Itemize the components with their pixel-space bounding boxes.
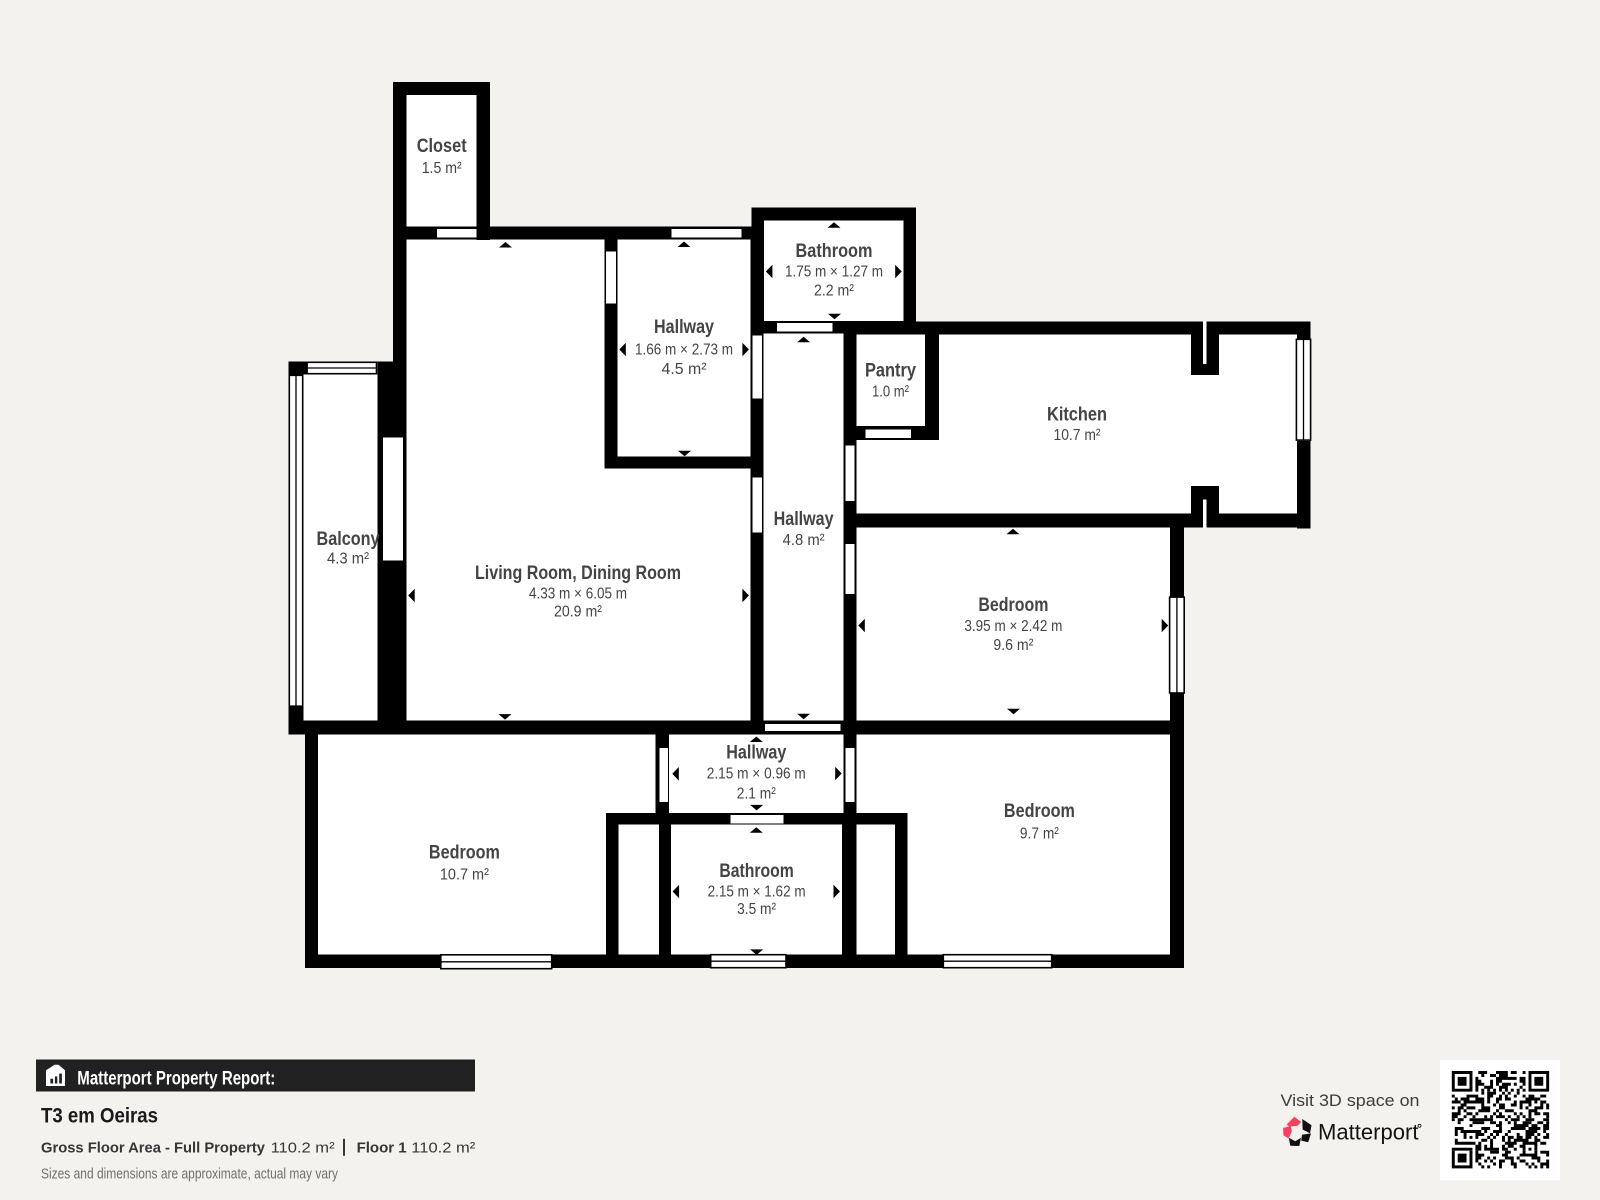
svg-text:4.3 m²: 4.3 m² [327,551,370,568]
svg-text:Bedroom: Bedroom [429,843,500,864]
svg-text:Visit 3D space on: Visit 3D space on [1281,1091,1420,1110]
svg-text:9.6 m²: 9.6 m² [993,637,1034,654]
svg-text:Kitchen: Kitchen [1047,405,1107,426]
svg-text:Bedroom: Bedroom [978,595,1048,616]
svg-text:Gross Floor Area - Full Proper: Gross Floor Area - Full Property [41,1139,266,1156]
svg-text:2.1 m²: 2.1 m² [737,786,777,803]
svg-text:1.5 m²: 1.5 m² [422,160,463,177]
svg-text:Pantry: Pantry [865,361,916,382]
svg-text:3.95 m × 2.42 m: 3.95 m × 2.42 m [964,618,1062,635]
svg-text:2.2 m²: 2.2 m² [814,283,855,300]
svg-text:Living Room, Dining Room: Living Room, Dining Room [475,563,681,584]
svg-text:4.33 m × 6.05 m: 4.33 m × 6.05 m [529,585,627,602]
svg-text:20.9 m²: 20.9 m² [554,603,603,620]
svg-text:Floor 1: Floor 1 [357,1139,407,1156]
svg-text:Hallway: Hallway [726,743,786,764]
svg-text:4.8 m²: 4.8 m² [783,532,826,549]
svg-text:Bathroom: Bathroom [719,861,794,882]
svg-text:2.15 m × 1.62 m: 2.15 m × 1.62 m [708,883,806,900]
svg-text:2.15 m × 0.96 m: 2.15 m × 0.96 m [707,766,806,783]
svg-text:4.5 m²: 4.5 m² [662,361,708,378]
svg-text:1.66 m × 2.73 m: 1.66 m × 2.73 m [635,342,733,359]
svg-text:Sizes and dimensions are appro: Sizes and dimensions are approximate, ac… [41,1166,338,1183]
svg-text:10.7 m²: 10.7 m² [1054,427,1102,444]
svg-text:T3 em Oeiras: T3 em Oeiras [41,1104,158,1128]
svg-text:9.7 m²: 9.7 m² [1020,826,1060,843]
svg-text:1.75 m × 1.27 m: 1.75 m × 1.27 m [785,264,883,281]
svg-text:3.5 m²: 3.5 m² [737,901,777,918]
svg-text:Matterport Property Report:: Matterport Property Report: [77,1068,275,1089]
svg-text:Balcony: Balcony [317,529,380,550]
svg-text:Hallway: Hallway [654,317,714,338]
svg-text:Bathroom: Bathroom [796,241,873,262]
svg-text:Closet: Closet [417,136,468,157]
svg-text:Hallway: Hallway [774,509,834,530]
svg-text:Matterport: Matterport [1318,1120,1419,1145]
svg-text:110.2 m²: 110.2 m² [411,1139,475,1156]
svg-text:110.2 m²: 110.2 m² [271,1139,335,1156]
svg-text:Bedroom: Bedroom [1004,801,1075,822]
svg-text:10.7 m²: 10.7 m² [440,867,490,884]
svg-text:1.0 m²: 1.0 m² [872,384,910,401]
